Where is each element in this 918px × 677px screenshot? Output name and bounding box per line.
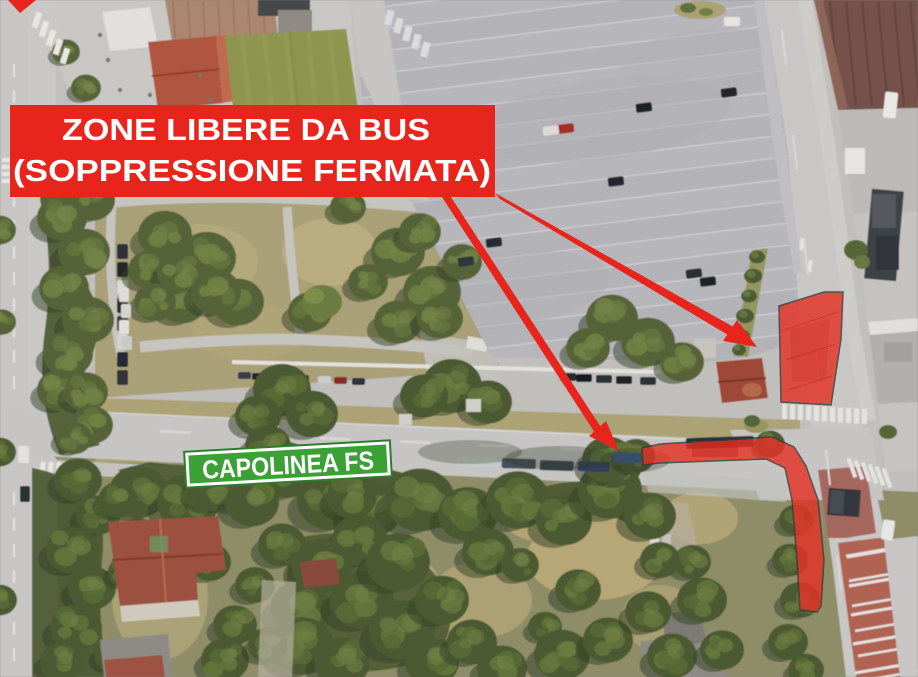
svg-text:ZONE LIBERE DA BUS: ZONE LIBERE DA BUS [62,112,430,147]
svg-text:(SOPPRESSIONE FERMATA): (SOPPRESSIONE FERMATA) [13,153,491,188]
